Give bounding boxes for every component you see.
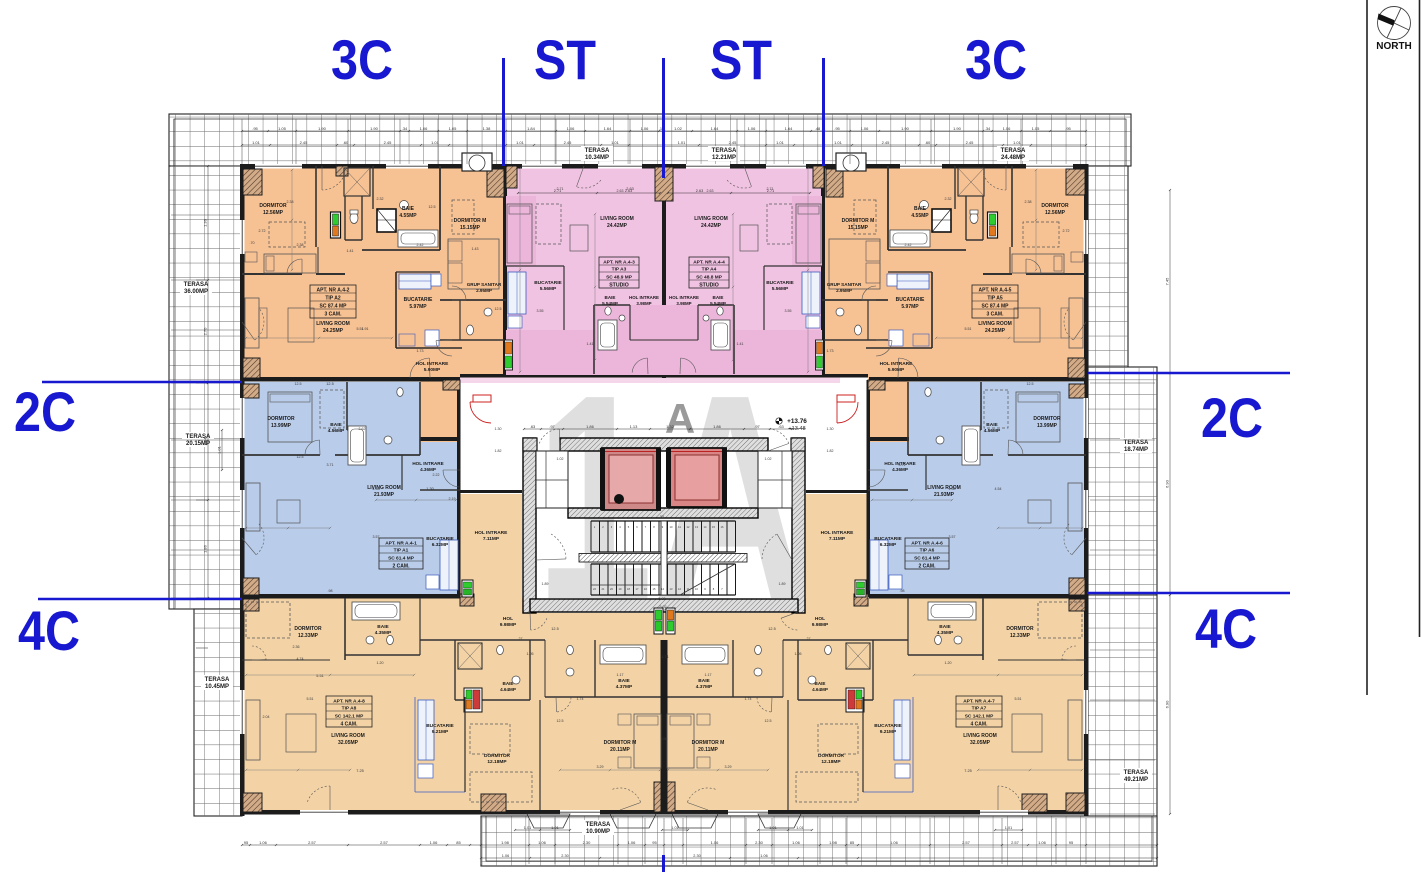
svg-text:1.64: 1.64: [604, 126, 613, 131]
svg-text:1.41: 1.41: [587, 342, 594, 346]
svg-text:APT. NR A.4-6: APT. NR A.4-6: [911, 541, 943, 547]
svg-text:2.36: 2.36: [293, 645, 300, 649]
svg-text:12.21MP: 12.21MP: [712, 155, 736, 161]
svg-text:2.63: 2.63: [707, 189, 714, 193]
svg-text:1.05: 1.05: [449, 126, 458, 131]
svg-text:TIP A4: TIP A4: [702, 267, 717, 273]
svg-text:2.57: 2.57: [380, 840, 389, 845]
svg-text:1.01: 1.01: [796, 826, 803, 830]
svg-text:.63: .63: [530, 424, 536, 429]
svg-text:1.73: 1.73: [827, 349, 834, 353]
svg-text:BAIE: BAIE: [914, 206, 927, 212]
svg-text:10.90MP: 10.90MP: [586, 829, 610, 835]
svg-text:20.11MP: 20.11MP: [698, 747, 718, 753]
svg-text:12.5: 12.5: [495, 307, 502, 311]
svg-text:12.5: 12.5: [1027, 382, 1034, 386]
svg-text:55: 55: [660, 515, 664, 519]
svg-text:12.56MP: 12.56MP: [263, 210, 284, 216]
svg-text:9.21MP: 9.21MP: [880, 729, 897, 735]
svg-text:12.33MP: 12.33MP: [298, 633, 319, 639]
svg-text:APT. NR A.4-4: APT. NR A.4-4: [693, 260, 725, 266]
svg-text:BUCATARIE: BUCATARIE: [426, 536, 454, 542]
svg-text:1.06: 1.06: [748, 126, 757, 131]
svg-text:1.30: 1.30: [426, 487, 433, 491]
svg-text:5.90MP: 5.90MP: [888, 367, 905, 373]
svg-text:4.55MP: 4.55MP: [399, 213, 417, 219]
svg-text:BUCATARIE: BUCATARIE: [874, 723, 902, 729]
svg-text:TERASA: TERASA: [712, 148, 737, 154]
svg-text:1.41: 1.41: [347, 249, 354, 253]
svg-text:10.34MP: 10.34MP: [585, 155, 609, 161]
svg-text:1.01: 1.01: [516, 140, 525, 145]
svg-text:85: 85: [850, 840, 855, 845]
svg-text:2.57: 2.57: [1011, 840, 1020, 845]
svg-text:1.01: 1.01: [769, 826, 776, 830]
svg-text:24.42MP: 24.42MP: [701, 223, 722, 229]
svg-text:1.90: 1.90: [901, 126, 910, 131]
svg-text:21.93MP: 21.93MP: [374, 492, 395, 498]
svg-text:1.86: 1.86: [713, 424, 722, 429]
svg-text:1.30: 1.30: [949, 487, 956, 491]
svg-text:5.97MP: 5.97MP: [901, 304, 919, 310]
svg-text:.60: .60: [925, 140, 931, 145]
svg-text:DORMITOR: DORMITOR: [1041, 203, 1069, 209]
svg-text:2.63: 2.63: [617, 189, 624, 193]
svg-text:36.00MP: 36.00MP: [184, 289, 208, 295]
svg-text:3C: 3C: [965, 28, 1027, 91]
svg-text:LIVING ROOM: LIVING ROOM: [600, 216, 634, 222]
svg-text:+13.76: +13.76: [787, 418, 807, 425]
svg-text:1.01: 1.01: [524, 826, 531, 830]
svg-text:1.74: 1.74: [662, 655, 669, 659]
svg-text:DORMITOR: DORMITOR: [818, 753, 845, 759]
svg-text:1.90: 1.90: [370, 126, 379, 131]
svg-text:2.45: 2.45: [729, 140, 738, 145]
svg-text:1.02: 1.02: [557, 457, 564, 461]
svg-text:TIP A6: TIP A6: [920, 548, 935, 554]
svg-text:1.06: 1.06: [890, 840, 899, 845]
svg-text:3.29: 3.29: [597, 765, 604, 769]
svg-text:1.06: 1.06: [628, 840, 637, 845]
svg-text:1.90: 1.90: [318, 126, 327, 131]
svg-text:95: 95: [652, 840, 657, 845]
svg-text:4.36MP: 4.36MP: [892, 467, 908, 472]
svg-text:2.71: 2.71: [557, 187, 564, 191]
svg-text:APT. NR A.4-2: APT. NR A.4-2: [317, 288, 350, 294]
svg-text:ST: ST: [534, 28, 596, 91]
svg-text:2 CAM.: 2 CAM.: [919, 564, 937, 570]
svg-text:4.54: 4.54: [995, 487, 1002, 491]
svg-text:1.01: 1.01: [776, 140, 785, 145]
svg-text:12.33MP: 12.33MP: [1010, 633, 1031, 639]
svg-text:5.51: 5.51: [357, 327, 364, 331]
svg-text:5.51: 5.51: [316, 674, 323, 678]
svg-text:5.51: 5.51: [1015, 697, 1022, 701]
svg-text:9.98MP: 9.98MP: [500, 622, 517, 628]
svg-text:5.82: 5.82: [659, 597, 666, 601]
svg-text:BAIE: BAIE: [377, 624, 389, 630]
svg-text:DORMITOR M: DORMITOR M: [842, 218, 875, 224]
svg-text:1.86: 1.86: [203, 544, 208, 553]
svg-text:1.74: 1.74: [577, 697, 584, 701]
svg-text:1.02: 1.02: [765, 457, 772, 461]
svg-text:BUCATARIE: BUCATARIE: [896, 297, 925, 303]
svg-text:12.5: 12.5: [765, 719, 772, 723]
svg-text:2.45: 2.45: [882, 140, 891, 145]
svg-text:13.99MP: 13.99MP: [1037, 423, 1058, 429]
svg-text:2.42: 2.42: [905, 243, 912, 247]
svg-text:12.5: 12.5: [429, 205, 436, 209]
svg-text:9.98MP: 9.98MP: [812, 622, 829, 628]
svg-text:A: A: [665, 395, 695, 442]
svg-text:.63: .63: [778, 424, 784, 429]
svg-text:2C: 2C: [1201, 386, 1263, 449]
svg-text:.27: .27: [518, 637, 523, 641]
svg-text:13.99MP: 13.99MP: [271, 423, 292, 429]
svg-text:HOL INTRARE: HOL INTRARE: [416, 361, 449, 367]
svg-text:1.98: 1.98: [829, 840, 838, 845]
svg-text:4.37MP: 4.37MP: [616, 684, 633, 690]
svg-text:2.63: 2.63: [626, 187, 633, 191]
svg-text:.48: .48: [815, 126, 821, 131]
svg-text:1.73: 1.73: [417, 349, 424, 353]
svg-text:APT. NR A.4-5: APT. NR A.4-5: [979, 288, 1012, 294]
svg-text:TIP A8: TIP A8: [342, 706, 357, 712]
svg-text:12.5: 12.5: [326, 382, 333, 386]
svg-text:TERASA: TERASA: [1001, 148, 1026, 154]
svg-text:3C: 3C: [331, 28, 393, 91]
svg-text:SC 142.1 MP: SC 142.1 MP: [335, 714, 364, 720]
svg-text:1.84: 1.84: [527, 126, 536, 131]
svg-text:4C: 4C: [18, 599, 80, 662]
svg-text:GRUP SANITAR: GRUP SANITAR: [827, 282, 862, 287]
svg-text:3.55: 3.55: [537, 309, 544, 313]
svg-text:95: 95: [244, 840, 249, 845]
svg-text:DORMITOR M: DORMITOR M: [454, 218, 487, 224]
svg-text:STUDIO: STUDIO: [699, 283, 719, 289]
svg-text:BAIE: BAIE: [939, 624, 951, 630]
svg-text:24.42MP: 24.42MP: [607, 223, 628, 229]
svg-text:4.37MP: 4.37MP: [696, 684, 713, 690]
svg-text:1.06: 1.06: [861, 126, 870, 131]
svg-text:3 CAM.: 3 CAM.: [325, 312, 343, 318]
svg-text:3.98MP: 3.98MP: [636, 301, 651, 306]
svg-text:BAIE: BAIE: [815, 681, 826, 686]
svg-text:1.01: 1.01: [678, 140, 687, 145]
svg-text:HOL INTRARE: HOL INTRARE: [821, 530, 854, 536]
svg-text:3.71: 3.71: [899, 463, 906, 467]
svg-text:2.71: 2.71: [767, 187, 774, 191]
svg-text:3.57: 3.57: [949, 535, 956, 539]
svg-text:HOL INTRARE: HOL INTRARE: [629, 295, 659, 300]
svg-text:6.32MP: 6.32MP: [880, 542, 897, 548]
svg-text:1.82: 1.82: [495, 449, 502, 453]
svg-text:12.5: 12.5: [295, 382, 302, 386]
svg-text:GRUP SANITAR: GRUP SANITAR: [467, 282, 502, 287]
svg-text:12.5: 12.5: [768, 627, 775, 631]
svg-text:TERASA: TERASA: [586, 822, 611, 828]
svg-text:.98: .98: [328, 589, 333, 593]
svg-text:2.42: 2.42: [417, 243, 424, 247]
svg-text:4.54: 4.54: [372, 487, 379, 491]
svg-text:3.71: 3.71: [327, 463, 334, 467]
svg-text:1.17: 1.17: [705, 673, 712, 677]
svg-text:2.72: 2.72: [259, 229, 266, 233]
svg-text:7.11MP: 7.11MP: [483, 536, 500, 542]
svg-text:SC 48.8 MP: SC 48.8 MP: [696, 275, 723, 281]
svg-text:HOL INTRARE: HOL INTRARE: [475, 530, 508, 536]
svg-text:.97: .97: [549, 424, 555, 429]
svg-text:TERASA: TERASA: [1124, 770, 1149, 776]
svg-text:1.06: 1.06: [502, 854, 509, 858]
svg-text:7.11MP: 7.11MP: [829, 536, 846, 542]
svg-text:1.01: 1.01: [834, 140, 843, 145]
svg-text:3.57: 3.57: [373, 535, 380, 539]
svg-text:BUCATARIE: BUCATARIE: [766, 280, 794, 286]
svg-text:HOL: HOL: [503, 616, 513, 622]
svg-text:TERASA: TERASA: [184, 282, 209, 288]
svg-text:2.95MP: 2.95MP: [476, 288, 492, 293]
svg-text:1.06: 1.06: [760, 854, 767, 858]
svg-text:6.32MP: 6.32MP: [432, 542, 449, 548]
svg-text:TIP A5: TIP A5: [987, 296, 1003, 302]
svg-text:1.38: 1.38: [483, 126, 492, 131]
svg-text:2.95MP: 2.95MP: [836, 288, 852, 293]
svg-text:.97: .97: [754, 424, 760, 429]
svg-text:4.56MP: 4.56MP: [328, 428, 345, 434]
svg-text:2.30: 2.30: [583, 840, 592, 845]
svg-text:24.48MP: 24.48MP: [1001, 155, 1025, 161]
svg-text:.95: .95: [834, 126, 840, 131]
svg-text:3.55: 3.55: [785, 309, 792, 313]
svg-text:4.74: 4.74: [297, 657, 304, 661]
svg-text:6.90: 6.90: [1165, 700, 1170, 709]
svg-text:5.02: 5.02: [660, 605, 667, 609]
svg-text:4C: 4C: [1195, 597, 1257, 660]
svg-text:1.02: 1.02: [674, 126, 683, 131]
svg-text:3 CAM.: 3 CAM.: [987, 312, 1005, 318]
svg-text:1.30: 1.30: [495, 427, 502, 431]
svg-text:1.01: 1.01: [611, 140, 620, 145]
svg-text:BAIE: BAIE: [605, 295, 616, 300]
svg-text:4.56MP: 4.56MP: [984, 428, 1001, 434]
svg-text:5.97MP: 5.97MP: [409, 304, 427, 310]
svg-text:2.45: 2.45: [564, 140, 573, 145]
svg-text:HOL INTRARE: HOL INTRARE: [412, 461, 443, 466]
svg-text:2.32: 2.32: [945, 197, 952, 201]
svg-text:4.35MP: 4.35MP: [937, 630, 954, 636]
svg-text:3.29: 3.29: [725, 765, 732, 769]
svg-text:ST: ST: [710, 28, 772, 91]
svg-text:2.72: 2.72: [1063, 229, 1070, 233]
svg-text:1.41: 1.41: [737, 342, 744, 346]
svg-text:1.06: 1.06: [567, 126, 576, 131]
svg-text:4 CAM.: 4 CAM.: [341, 722, 359, 728]
svg-text:49.21MP: 49.21MP: [1124, 777, 1148, 783]
svg-text:1.30: 1.30: [827, 427, 834, 431]
svg-text:.98: .98: [900, 589, 905, 593]
svg-text:7.25: 7.25: [964, 769, 971, 773]
svg-text:BAIE: BAIE: [618, 678, 630, 684]
svg-text:APT. NR A.4-3: APT. NR A.4-3: [603, 260, 635, 266]
svg-text:HOL: HOL: [815, 616, 825, 622]
svg-text:1.06: 1.06: [430, 840, 439, 845]
svg-text:STUDIO: STUDIO: [609, 283, 629, 289]
svg-text:1.06: 1.06: [792, 840, 801, 845]
svg-text:2.04: 2.04: [263, 715, 270, 719]
svg-text:LIVING ROOM: LIVING ROOM: [694, 216, 728, 222]
svg-text:HOL INTRARE: HOL INTRARE: [669, 295, 699, 300]
svg-text:TERASA: TERASA: [205, 677, 230, 683]
svg-text:95: 95: [1069, 840, 1074, 845]
svg-text:1.01: 1.01: [431, 140, 440, 145]
svg-text:TIP A3: TIP A3: [612, 267, 627, 273]
svg-text:1.06: 1.06: [420, 126, 429, 131]
svg-text:2.45: 2.45: [300, 140, 309, 145]
svg-text:DORMITOR: DORMITOR: [1006, 626, 1034, 632]
svg-text:4.55MP: 4.55MP: [911, 213, 929, 219]
svg-text:SC 61.4 MP: SC 61.4 MP: [914, 556, 941, 562]
svg-text:1.89: 1.89: [779, 582, 786, 586]
svg-text:9.21MP: 9.21MP: [432, 729, 449, 735]
svg-text:2.70: 2.70: [203, 327, 208, 336]
svg-text:4.64MP: 4.64MP: [500, 687, 516, 692]
svg-text:APT. NR A.4-7: APT. NR A.4-7: [963, 699, 995, 705]
svg-text:DORMITOR: DORMITOR: [259, 203, 287, 209]
svg-text:DORMITOR M: DORMITOR M: [692, 740, 725, 746]
svg-text:32.05MP: 32.05MP: [338, 740, 359, 746]
svg-text:1.90: 1.90: [953, 126, 962, 131]
svg-text:HOL INTRARE: HOL INTRARE: [880, 361, 913, 367]
svg-text:BAIE: BAIE: [402, 206, 415, 212]
svg-text:1.05: 1.05: [278, 126, 287, 131]
svg-text:2.64: 2.64: [203, 437, 208, 446]
svg-text:2.32: 2.32: [377, 197, 384, 201]
svg-text:SC 61.4 MP: SC 61.4 MP: [388, 556, 415, 562]
svg-text:2.38: 2.38: [297, 243, 304, 247]
svg-text:6.90: 6.90: [1165, 479, 1170, 488]
svg-text:TERASA: TERASA: [585, 148, 610, 154]
svg-text:SC 142.1 MP: SC 142.1 MP: [965, 714, 994, 720]
svg-text:12.5: 12.5: [551, 627, 558, 631]
svg-text:1.74: 1.74: [745, 697, 752, 701]
svg-text:.70: .70: [250, 241, 255, 245]
svg-text:2.22: 2.22: [433, 473, 440, 477]
svg-text:TERASA: TERASA: [1124, 440, 1149, 446]
svg-text:1.05: 1.05: [527, 652, 534, 656]
svg-text:.95: .95: [1065, 126, 1071, 131]
svg-text:1.20: 1.20: [377, 661, 384, 665]
svg-text:5.54MP: 5.54MP: [602, 301, 618, 306]
svg-text:12.56MP: 12.56MP: [1045, 210, 1066, 216]
svg-text:APT. NR A.4-8: APT. NR A.4-8: [333, 699, 365, 705]
svg-text:NORTH: NORTH: [1376, 41, 1412, 52]
svg-text:21.93MP: 21.93MP: [934, 492, 955, 498]
svg-text:TIP A1: TIP A1: [394, 548, 409, 554]
svg-text:DORMITOR M: DORMITOR M: [604, 740, 637, 746]
svg-text:2.45: 2.45: [966, 140, 975, 145]
svg-text:2.57: 2.57: [962, 840, 971, 845]
svg-text:1.89: 1.89: [542, 582, 549, 586]
svg-text:1.86: 1.86: [586, 424, 595, 429]
svg-text:LIVING ROOM: LIVING ROOM: [963, 733, 997, 739]
svg-text:APT. NR A.4-1: APT. NR A.4-1: [385, 541, 417, 547]
svg-text:1.32: 1.32: [666, 424, 675, 429]
svg-text:BAIE: BAIE: [503, 681, 514, 686]
svg-text:1.01: 1.01: [671, 826, 678, 830]
svg-text:7.25: 7.25: [356, 769, 363, 773]
svg-text:5.54MP: 5.54MP: [710, 301, 726, 306]
svg-text:BAIE: BAIE: [986, 422, 998, 428]
svg-text:2.19: 2.19: [449, 497, 456, 501]
svg-text:15.15MP: 15.15MP: [848, 225, 869, 231]
svg-text:.34: .34: [402, 126, 408, 131]
svg-text:1.01: 1.01: [217, 445, 222, 454]
svg-text:1.01: 1.01: [1013, 140, 1022, 145]
svg-text:5.90MP: 5.90MP: [424, 367, 441, 373]
svg-text:.27: .27: [806, 637, 811, 641]
svg-text:10.45MP: 10.45MP: [205, 684, 229, 690]
svg-text:1.64: 1.64: [711, 126, 720, 131]
svg-text:LIVING ROOM: LIVING ROOM: [331, 733, 365, 739]
svg-text:1.43: 1.43: [472, 247, 479, 251]
svg-text:4.35MP: 4.35MP: [375, 630, 392, 636]
svg-text:SC 48.9 MP: SC 48.9 MP: [606, 275, 633, 281]
svg-text:.95: .95: [252, 126, 258, 131]
svg-text:2C: 2C: [14, 380, 76, 443]
svg-text:LIVING ROOM: LIVING ROOM: [978, 321, 1012, 327]
svg-text:1.06: 1.06: [641, 126, 650, 131]
svg-text:1.06: 1.06: [259, 840, 268, 845]
svg-text:2 CAM.: 2 CAM.: [393, 564, 411, 570]
svg-text:1.05: 1.05: [1032, 126, 1041, 131]
svg-text:12.5: 12.5: [557, 719, 564, 723]
svg-text:2.30: 2.30: [693, 854, 700, 858]
svg-text:12.5: 12.5: [297, 455, 304, 459]
svg-text:1.01: 1.01: [252, 140, 261, 145]
svg-text:5.51: 5.51: [965, 327, 972, 331]
svg-text:18.74MP: 18.74MP: [1124, 447, 1148, 453]
svg-text:5.56MP: 5.56MP: [772, 286, 789, 292]
svg-text:1.06: 1.06: [711, 840, 720, 845]
svg-text:24.25MP: 24.25MP: [985, 328, 1006, 334]
svg-text:DORMITOR: DORMITOR: [1033, 416, 1061, 422]
svg-text:12.18MP: 12.18MP: [487, 759, 507, 765]
svg-text:4.64MP: 4.64MP: [812, 687, 828, 692]
svg-text:1.01: 1.01: [1005, 826, 1012, 830]
svg-text:TIP A7: TIP A7: [972, 706, 987, 712]
svg-text:TIP A2: TIP A2: [325, 296, 341, 302]
svg-text:1.20: 1.20: [945, 661, 952, 665]
svg-text:BUCATARIE: BUCATARIE: [426, 723, 454, 729]
svg-text:15.15MP: 15.15MP: [460, 225, 481, 231]
svg-text:5.56MP: 5.56MP: [540, 286, 557, 292]
svg-text:LIVING ROOM: LIVING ROOM: [316, 321, 350, 327]
svg-text:1.06: 1.06: [538, 840, 547, 845]
svg-text:SC 87.4 MP: SC 87.4 MP: [320, 304, 348, 310]
svg-text:1.64: 1.64: [785, 126, 794, 131]
svg-text:BUCATARIE: BUCATARIE: [874, 536, 902, 542]
svg-text:24.25MP: 24.25MP: [323, 328, 344, 334]
svg-text:2.30: 2.30: [561, 854, 568, 858]
svg-text:.34: .34: [985, 126, 991, 131]
svg-text:2.38: 2.38: [287, 200, 294, 204]
svg-text:2.45: 2.45: [384, 140, 393, 145]
svg-text:3.98MP: 3.98MP: [676, 301, 691, 306]
svg-text:4 CAM.: 4 CAM.: [971, 722, 989, 728]
svg-text:20.11MP: 20.11MP: [610, 747, 630, 753]
svg-text:12.18MP: 12.18MP: [821, 759, 841, 765]
